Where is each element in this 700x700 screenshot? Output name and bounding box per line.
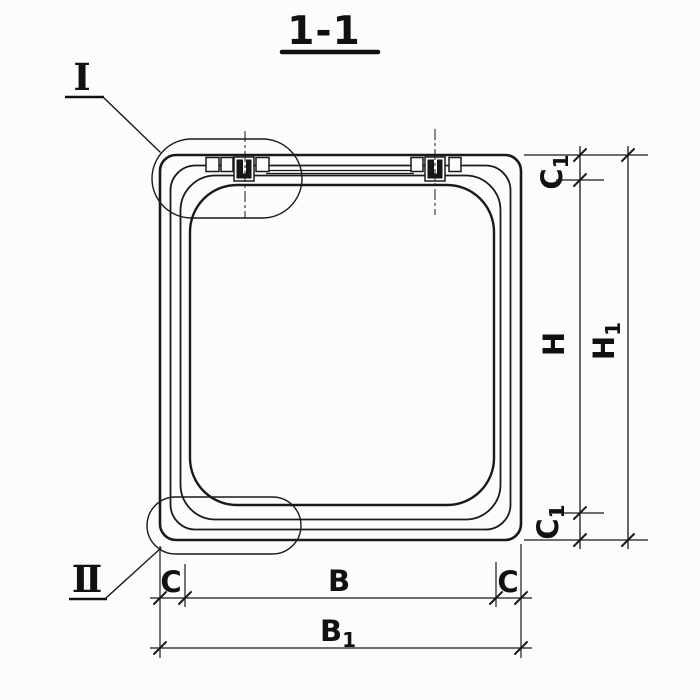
- anchor-recess: [411, 158, 423, 172]
- dim-label-main: C: [497, 565, 518, 599]
- dim-label-c-right: C: [497, 565, 518, 599]
- horizontal-dimensions: C B C B1: [150, 544, 532, 658]
- view-title-text: 1-1: [287, 9, 360, 54]
- dim-label-c1-bottom: C1: [531, 504, 569, 539]
- dim-label-c1-top: C1: [535, 154, 573, 189]
- section-drawing-1-1: 1-1 I II: [0, 0, 700, 700]
- dim-label-c-left: C: [160, 565, 181, 599]
- dim-label-main: H: [587, 336, 621, 360]
- inner-cavity-contour: [190, 185, 494, 505]
- detail-2-label: II: [72, 557, 101, 601]
- dim-label-sub: 1: [601, 322, 625, 336]
- anchor-recess: [206, 158, 219, 172]
- callout-detail-1: I: [65, 55, 160, 152]
- dim-label-b1: B1: [320, 614, 356, 652]
- anchor-recess: [221, 158, 233, 172]
- anchor-recess: [256, 158, 269, 172]
- detail-1-leader: [103, 97, 160, 152]
- vertical-dimensions: C1 H H1 C1: [524, 146, 648, 549]
- dim-label-main: C: [160, 565, 181, 599]
- callout-detail-2: II: [69, 548, 161, 601]
- dim-label-main: H: [537, 332, 571, 356]
- detail-1-label: I: [73, 55, 90, 99]
- dim-label-h1: H1: [587, 322, 625, 360]
- embedded-anchor-left: [206, 131, 269, 218]
- dim-label-h: H: [537, 332, 571, 356]
- embedded-anchor-right: [411, 129, 461, 215]
- outer-contour: [160, 155, 521, 540]
- dim-label-sub: 1: [342, 628, 356, 652]
- view-title: 1-1: [282, 9, 378, 54]
- dim-label-main: C: [531, 518, 565, 539]
- dim-label-b: B: [328, 564, 350, 598]
- dim-label-sub: 1: [549, 154, 573, 168]
- detail-2-leader: [106, 548, 161, 598]
- mid-contour-1: [171, 166, 511, 530]
- dim-label-main: C: [535, 168, 569, 189]
- mid-contour-2: [181, 176, 501, 520]
- dim-label-main: B: [320, 614, 342, 648]
- dim-label-main: B: [328, 564, 350, 598]
- drawing-sheet: 1-1 I II: [0, 0, 700, 700]
- dim-label-sub: 1: [545, 504, 569, 518]
- anchor-recess: [449, 158, 461, 172]
- section-contours: [160, 155, 521, 540]
